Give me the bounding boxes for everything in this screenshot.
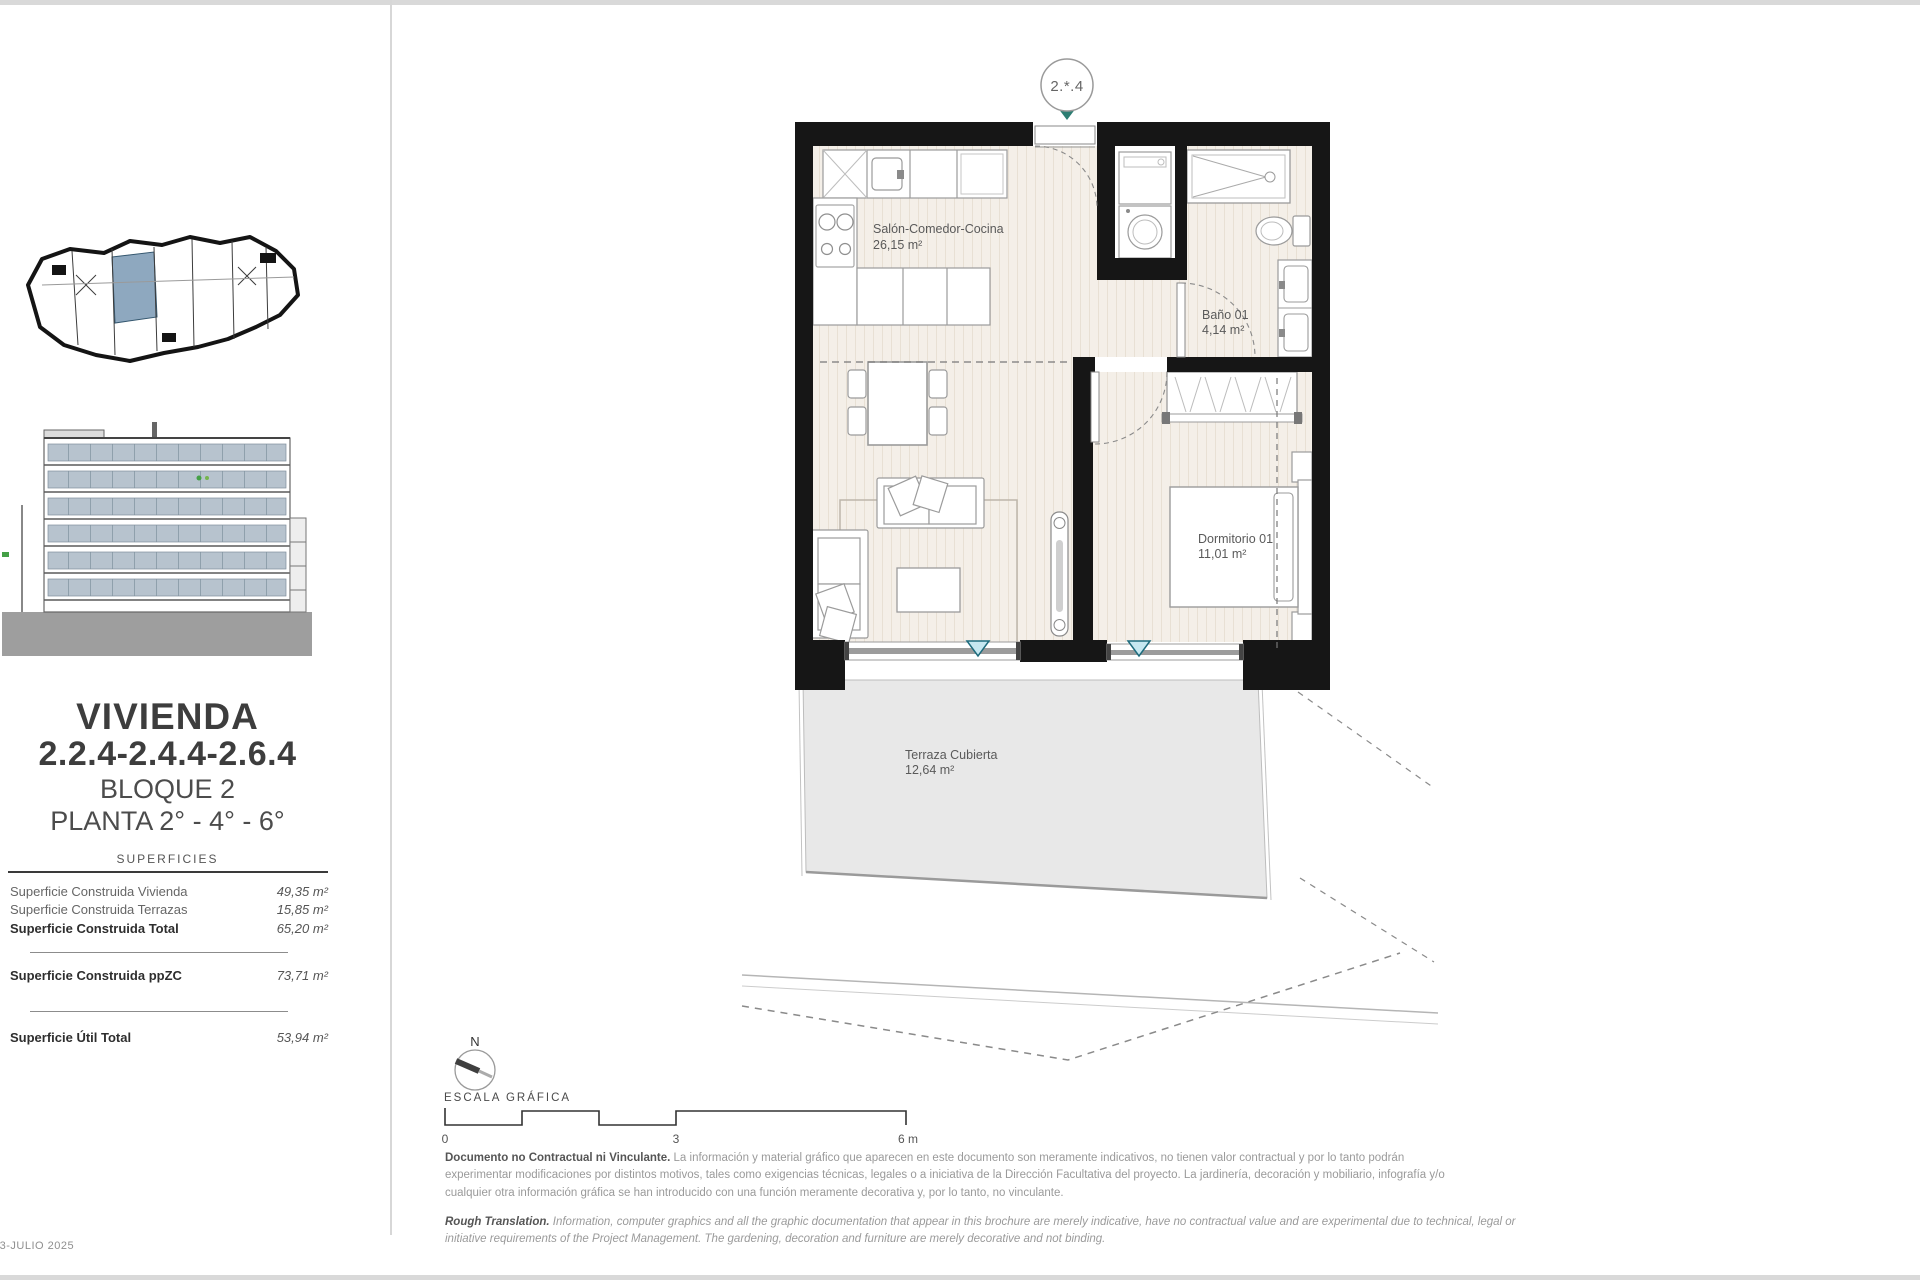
building-cores [52,253,276,342]
table-row: Superficie Construida Total 65,20 m² [10,919,328,938]
terrace [799,680,1271,900]
nightstand [1292,612,1312,642]
shower [1187,150,1290,203]
chair [848,370,866,398]
brochure-page: VIVIENDA 2.2.4-2.4.4-2.6.4 BLOQUE 2 PLAN… [0,0,1920,1280]
room-label-bath: Baño 01 [1202,308,1249,322]
headboard [1298,480,1312,614]
date-stamp: 03-JULIO 2025 [0,1240,74,1252]
shower-drain [1265,172,1275,182]
scale-bar: ESCALA GRÁFICA 0 3 6 m [442,1091,918,1146]
surface-value: 65,20 m² [277,921,328,936]
toilet [1256,216,1310,246]
radiator [1051,512,1068,636]
room-area-bath: 4,14 m² [1202,323,1244,337]
roof-box [44,430,104,438]
surface-label: Superficie Construida Vivienda [10,884,188,899]
north-label: N [470,1034,479,1049]
coffee-table [897,568,960,612]
table-divider [30,952,288,953]
chair [929,370,947,398]
surface-label: Superficie Construida Total [10,921,179,936]
sink [1284,314,1308,351]
block-label: BLOQUE 2 [0,774,335,806]
cooktop [816,205,854,267]
room-label-terrace: Terraza Cubierta [905,748,997,762]
disclaimer-en-lead: Rough Translation. [445,1216,550,1228]
page-title: VIVIENDA [0,698,335,735]
room-label-living: Salón-Comedor-Cocina [873,222,1004,236]
surface-value: 15,85 m² [277,902,328,917]
floors-label: PLANTA 2° - 4° - 6° [0,806,335,838]
side-annex [290,518,306,612]
disclaimer-en-body: Information, computer graphics and all t… [445,1216,1516,1245]
bedroom-window [1107,644,1243,660]
page-top-edge [0,0,1920,5]
surface-value: 73,71 m² [277,968,328,983]
disclaimer-english: Rough Translation. Information, computer… [445,1214,1545,1249]
armchair [810,530,868,643]
floor-plan: 2.*.4 Salón-Comedor-Cocina 26,15 m² Baño… [420,30,1460,1150]
table-row: Superficie Construida ppZC 73,71 m² [10,967,328,986]
disclaimer-es-lead: Documento no Contractual ni Vinculante. [445,1152,670,1164]
table-row: Superficie Construida Terrazas 15,85 m² [10,901,328,920]
room-area-living: 26,15 m² [873,238,922,252]
antenna [152,422,157,438]
green-dot [197,476,202,481]
building-footprint-outline [28,237,298,361]
surfaces-heading: SUPERFICIES [0,852,335,866]
surface-label: Superficie Construida ppZC [10,968,182,983]
page-bottom-edge [0,1275,1920,1280]
building-plan-thumbnail [12,215,322,395]
wardrobe [1162,372,1302,424]
surface-label: Superficie Construida Terrazas [10,902,188,917]
unit-badge: 2.*.4 [1041,59,1093,111]
scale-tick-6: 6 m [898,1132,918,1146]
table-row: Superficie Útil Total 53,94 m² [10,1028,328,1047]
sink [1284,266,1308,302]
disclaimer-spanish: Documento no Contractual ni Vinculante. … [445,1150,1455,1202]
building-elevation [2,410,314,666]
chair [929,407,947,435]
nightstand [1292,452,1312,482]
green-dot-2 [205,476,209,480]
scale-title: ESCALA GRÁFICA [444,1091,571,1104]
title-block: VIVIENDA 2.2.4-2.4.4-2.6.4 BLOQUE 2 PLAN… [0,698,335,838]
unit-numbers: 2.2.4-2.4.4-2.6.4 [0,735,335,774]
sidebar-divider [390,0,392,1235]
chair [848,407,866,435]
unit-badge-label: 2.*.4 [1050,78,1083,95]
room-label-bedroom: Dormitorio 01 [1198,532,1273,546]
surfaces-table: Superficie Construida Vivienda 49,35 m² … [10,882,328,1047]
sliding-glass-door [845,642,1020,660]
room-area-bedroom: 11,01 m² [1198,547,1246,561]
surface-label: Superficie Útil Total [10,1030,131,1045]
room-area-terrace: 12,64 m² [905,763,954,777]
highlighted-unit [112,252,157,323]
table-row: Superficie Construida Vivienda 49,35 m² [10,882,328,901]
scale-tick-0: 0 [442,1132,449,1146]
vanity-sinks [1278,260,1312,357]
ground-band [2,612,312,656]
surface-value: 49,35 m² [277,884,328,899]
green-mark [2,552,9,557]
surface-value: 53,94 m² [277,1030,328,1045]
north-compass: N [455,1034,495,1090]
surfaces-rule [8,871,328,873]
sofa [877,476,984,528]
scale-tick-3: 3 [673,1132,680,1146]
table-divider [30,1011,288,1012]
